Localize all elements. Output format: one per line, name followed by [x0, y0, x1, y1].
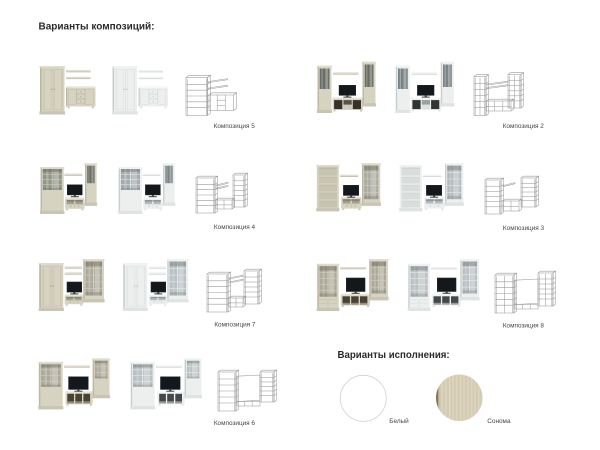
svg-text:Композиция 8: Композиция 8	[503, 322, 545, 329]
svg-text:Белый: Белый	[389, 417, 409, 425]
svg-text:Композиция 5: Композиция 5	[214, 123, 256, 130]
svg-text:Варианты исполнения:: Варианты исполнения:	[338, 350, 450, 361]
svg-text:Композиция 4: Композиция 4	[214, 224, 256, 231]
svg-text:Композиция 2: Композиция 2	[503, 123, 545, 130]
svg-text:Композиция 3: Композиция 3	[503, 225, 545, 232]
svg-text:Композиция 6: Композиция 6	[214, 420, 256, 427]
svg-text:Варианты композиций:: Варианты композиций:	[39, 21, 155, 32]
svg-text:Сонома: Сонома	[487, 418, 511, 425]
svg-text:Композиция 7: Композиция 7	[214, 321, 256, 328]
